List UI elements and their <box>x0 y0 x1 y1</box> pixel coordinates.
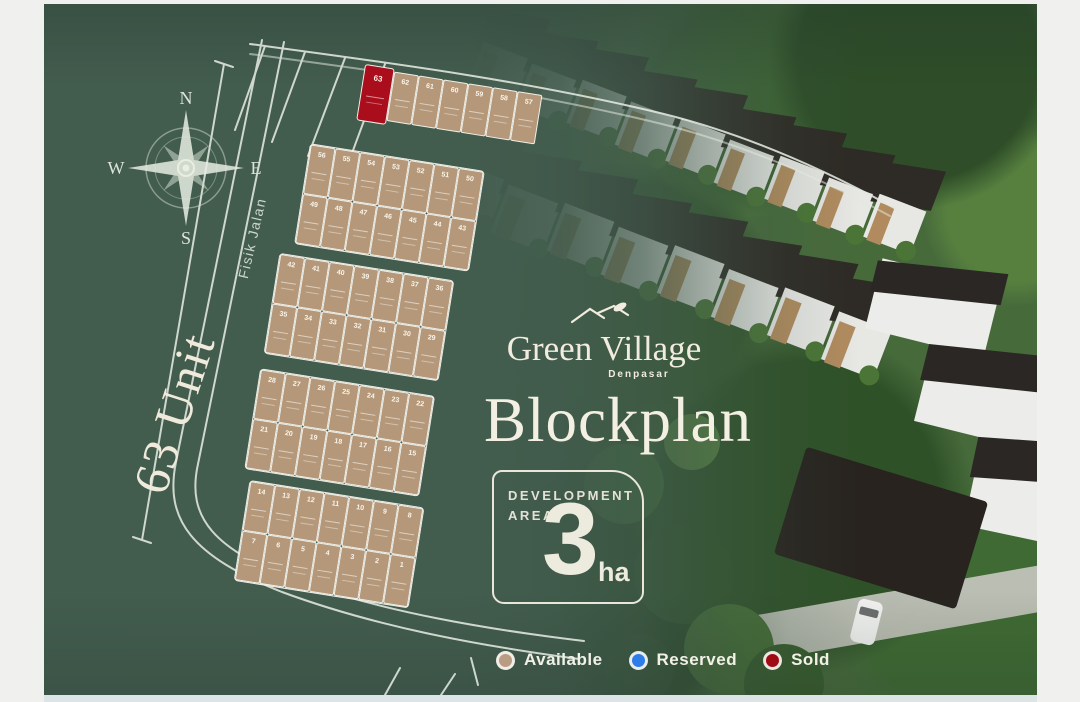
plot-block-4: 1413121110987654321 <box>234 480 425 608</box>
roof-leaf-icon <box>568 302 640 326</box>
legend-item-sold: Sold <box>763 650 830 670</box>
carport-roof <box>774 447 988 610</box>
page-title: Blockplan <box>484 384 752 457</box>
brand-logo: Green Village Denpasar <box>490 302 718 380</box>
plot-block-3: 2827262524232221201918171615 <box>244 368 435 496</box>
legend-label: Reserved <box>657 650 738 670</box>
brand-name: Green Village <box>490 331 718 368</box>
development-area-value: 3 <box>542 488 599 590</box>
development-area-badge: DEVELOPMENT AREA 3 ha <box>492 470 644 604</box>
reserved-status-dot <box>629 651 648 670</box>
compass-west-label: W <box>108 158 125 178</box>
sold-status-dot <box>763 651 782 670</box>
development-area-unit: ha <box>598 557 630 588</box>
plot-block-1: 5655545352515049484746454443 <box>294 143 485 271</box>
legend-label: Available <box>524 650 603 670</box>
compass-north-label: N <box>180 88 193 108</box>
villa-building <box>914 341 1037 452</box>
legend-item-reserved: Reserved <box>629 650 738 670</box>
compass-south-label: S <box>181 228 191 248</box>
legend-item-available: Available <box>496 650 603 670</box>
bottom-accent-bar <box>44 695 1037 702</box>
brand-location: Denpasar <box>560 369 718 380</box>
available-status-dot <box>496 651 515 670</box>
poster-canvas: N E S W 63 Unit Fisik Jalan 636261605958… <box>44 4 1037 695</box>
status-legend: AvailableReservedSold <box>496 650 830 670</box>
plot-block-2: 4241403938373635343332313029 <box>264 253 455 381</box>
legend-label: Sold <box>791 650 830 670</box>
